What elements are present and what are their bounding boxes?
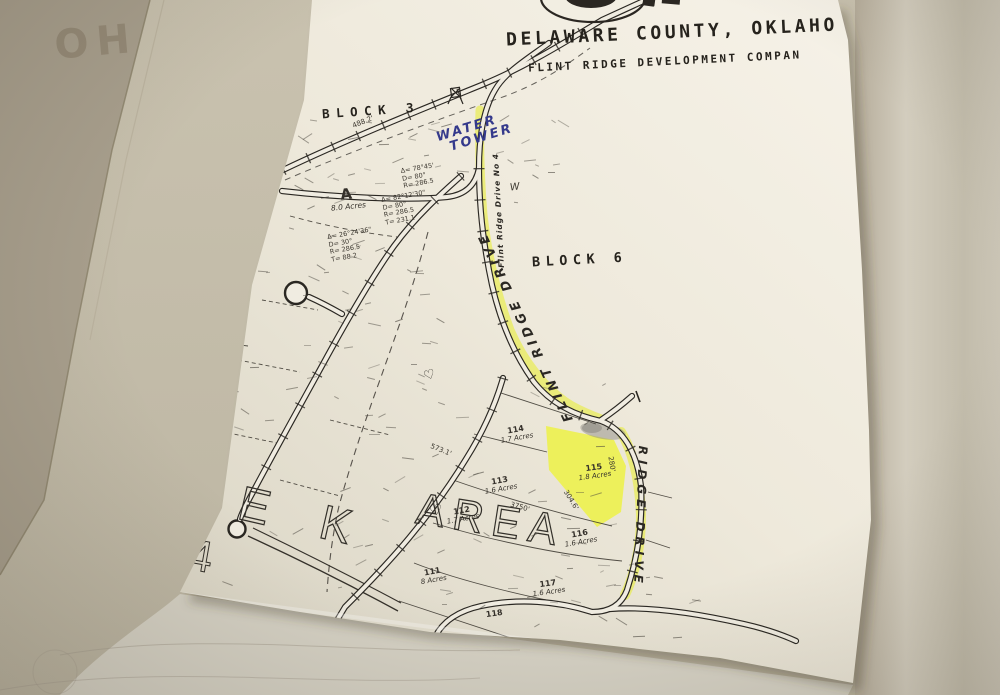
background-right-sheet bbox=[855, 0, 1000, 695]
map-line-art bbox=[0, 0, 1000, 695]
photo-of-plat-map: HO DELAWARE COUNTY, OKLAHO FLINT RIDGE D… bbox=[0, 0, 1000, 695]
